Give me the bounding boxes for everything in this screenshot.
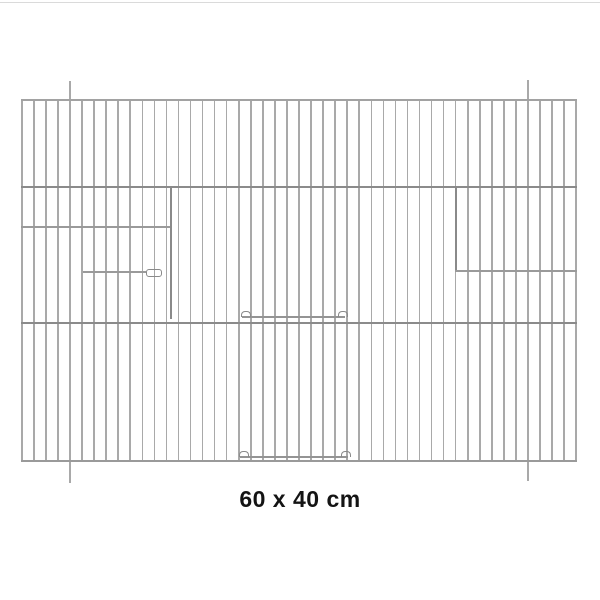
cage-bar [33, 99, 35, 462]
cage-bar [69, 99, 71, 462]
mounting-wire-top [69, 81, 71, 99]
cage-bar [117, 99, 119, 462]
cage-bar [358, 99, 360, 462]
door-hook-icon [239, 451, 249, 457]
cage-bar [322, 99, 324, 462]
cage-front-panel [21, 99, 577, 462]
cage-bar [455, 99, 457, 462]
cage-bar [154, 99, 156, 462]
center-door-bottom-rail [240, 456, 348, 458]
cage-bar [383, 99, 385, 462]
left-door-latch-rail [83, 271, 146, 273]
image-top-border [0, 2, 600, 3]
top-edge-wire [21, 99, 577, 101]
cage-bar [190, 99, 192, 462]
cage-bar [238, 99, 240, 462]
cage-bar [57, 99, 59, 462]
door-hook-icon [241, 311, 251, 317]
cage-bar [346, 99, 348, 462]
cage-bar [503, 99, 505, 462]
cage-bar [298, 99, 300, 462]
cage-bar [467, 99, 469, 462]
cage-bar [142, 99, 144, 462]
cage-bar [250, 99, 252, 462]
cage-bar [274, 99, 276, 462]
cage-bar [443, 99, 445, 462]
door-hook-icon [338, 311, 348, 317]
bottom-edge-wire [21, 460, 577, 462]
cage-bar [45, 99, 47, 462]
cage-bar [407, 99, 409, 462]
cage-bar [371, 99, 373, 462]
left-door-top-rail [21, 226, 170, 228]
upper-mid-wire [21, 186, 577, 188]
mounting-wire-bottom [527, 462, 529, 481]
right-door-frame-wire [455, 186, 457, 271]
cage-bar [129, 99, 131, 462]
cage-bar [575, 99, 577, 462]
cage-bar [563, 99, 565, 462]
cage-bar [166, 99, 168, 462]
cage-bar [214, 99, 216, 462]
cage-bar [286, 99, 288, 462]
cage-bar [491, 99, 493, 462]
cage-bar [431, 99, 433, 462]
latch-loop-icon [146, 269, 162, 277]
cage-bar [310, 99, 312, 462]
door-hook-icon [341, 451, 351, 457]
center-door-top-rail [242, 316, 345, 318]
cage-bar [419, 99, 421, 462]
left-door-frame-wire [170, 186, 172, 319]
product-photo: 60 x 40 cm [0, 0, 600, 600]
cage-bar [527, 99, 529, 462]
lower-mid-wire [21, 322, 577, 324]
cage-bar [93, 99, 95, 462]
cage-bar [479, 99, 481, 462]
cage-bar [515, 99, 517, 462]
cage-bar [551, 99, 553, 462]
cage-bar [334, 99, 336, 462]
mounting-wire-top [527, 80, 529, 99]
cage-bar [262, 99, 264, 462]
cage-bar [539, 99, 541, 462]
cage-bar [21, 99, 23, 462]
cage-bar [226, 99, 228, 462]
cage-bar [202, 99, 204, 462]
size-caption: 60 x 40 cm [0, 486, 600, 513]
mounting-wire-bottom [69, 462, 71, 483]
cage-bar [395, 99, 397, 462]
cage-bar [105, 99, 107, 462]
right-door-rail [455, 270, 577, 272]
cage-bar [81, 99, 83, 462]
cage-bar [178, 99, 180, 462]
